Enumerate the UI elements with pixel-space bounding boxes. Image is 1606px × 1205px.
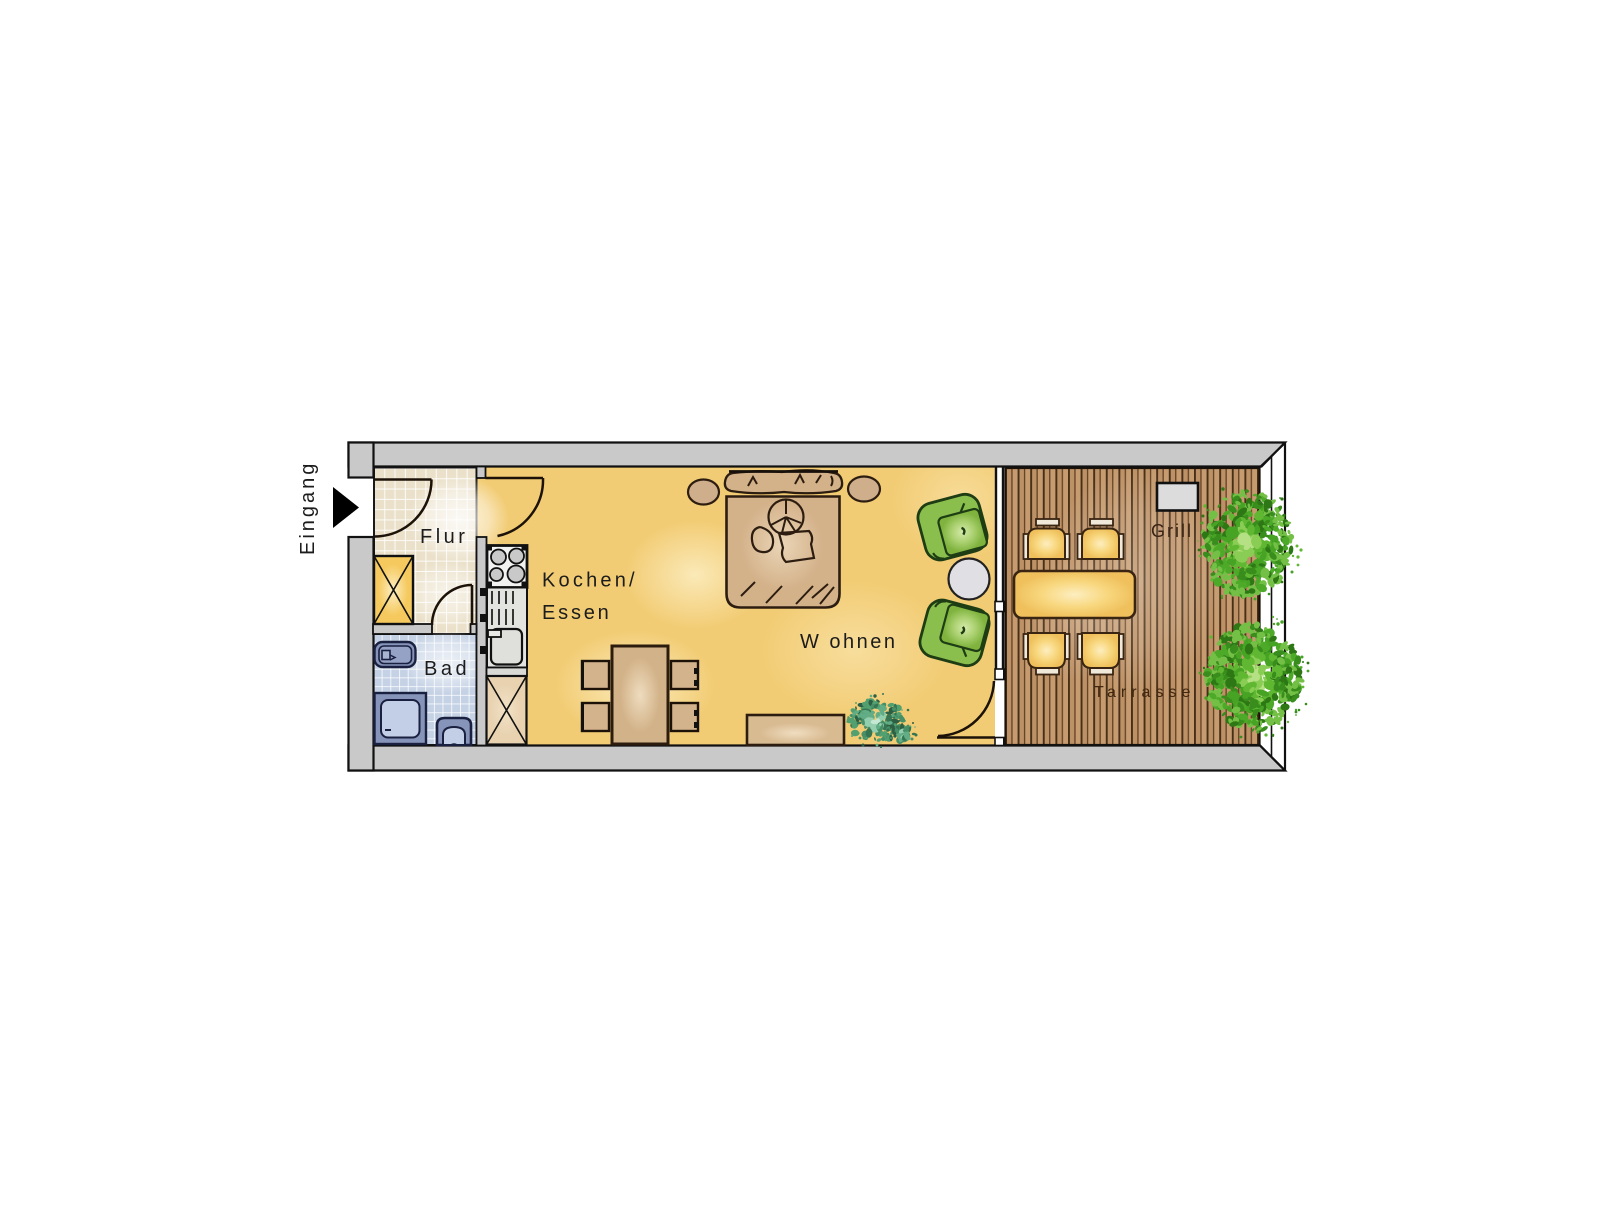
svg-text:Kochen/: Kochen/ (542, 570, 638, 592)
svg-text:Tarrasse: Tarrasse (1094, 684, 1195, 701)
svg-text:Flur: Flur (420, 526, 468, 548)
svg-text:Bad: Bad (424, 658, 470, 680)
svg-text:W ohnen: W ohnen (800, 631, 898, 653)
svg-text:Grill: Grill (1151, 521, 1193, 541)
svg-text:Eingang: Eingang (297, 461, 319, 555)
svg-text:Essen: Essen (542, 602, 612, 624)
